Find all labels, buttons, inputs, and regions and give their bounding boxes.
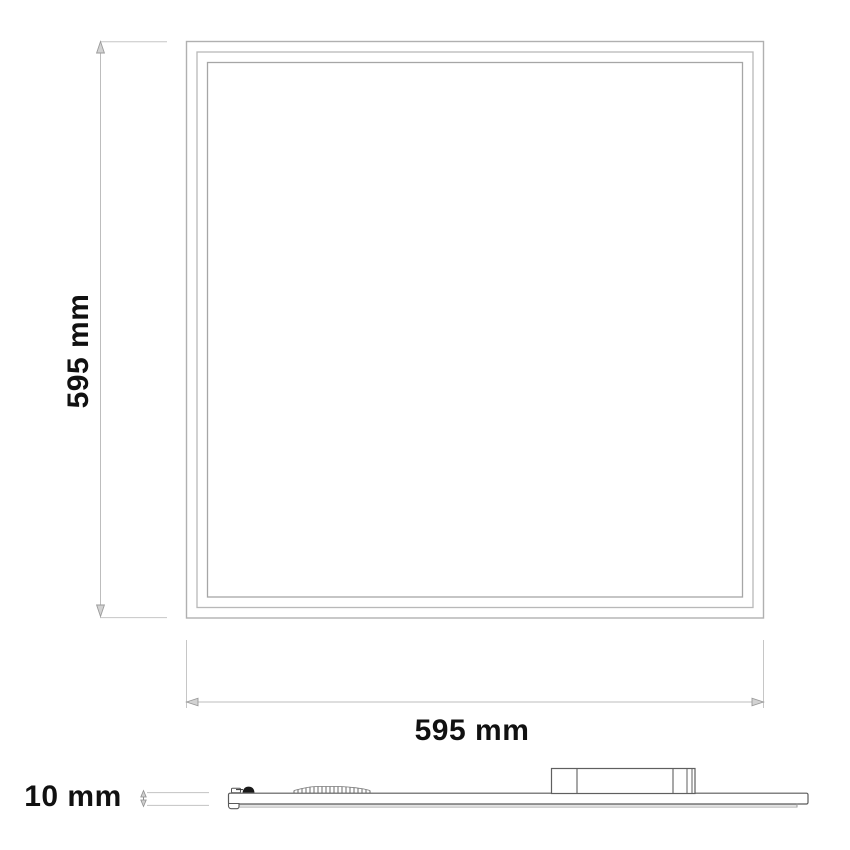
- profile-panel-body: [229, 793, 809, 804]
- front-view: [187, 42, 764, 619]
- width-dimension-label: 595 mm: [372, 715, 572, 747]
- profile-driver-box: [552, 769, 696, 794]
- thickness-dimension: [141, 791, 209, 807]
- thickness-dimension-label: 10 mm: [8, 781, 138, 813]
- profile-latch: [232, 788, 241, 793]
- thickness-arrow-up-icon: [141, 791, 146, 798]
- height-arrow-down-icon: [97, 605, 105, 617]
- profile-spring-clip: [243, 787, 255, 793]
- width-arrow-right-icon: [752, 698, 764, 706]
- width-arrow-left-icon: [187, 698, 199, 706]
- width-dimension: [187, 640, 764, 708]
- profile-ribbed-conduit: [294, 787, 370, 794]
- side-profile-view: [229, 769, 809, 809]
- profile-left-foot: [229, 804, 240, 809]
- front-view-inner-frame: [208, 63, 743, 598]
- thickness-arrow-down-icon: [141, 800, 146, 807]
- height-dimension: [97, 42, 167, 618]
- height-dimension-label: 595 mm: [63, 271, 95, 431]
- height-arrow-up-icon: [97, 42, 105, 54]
- panel-dimension-diagram: 595 mm 595 mm 10 mm: [0, 0, 850, 850]
